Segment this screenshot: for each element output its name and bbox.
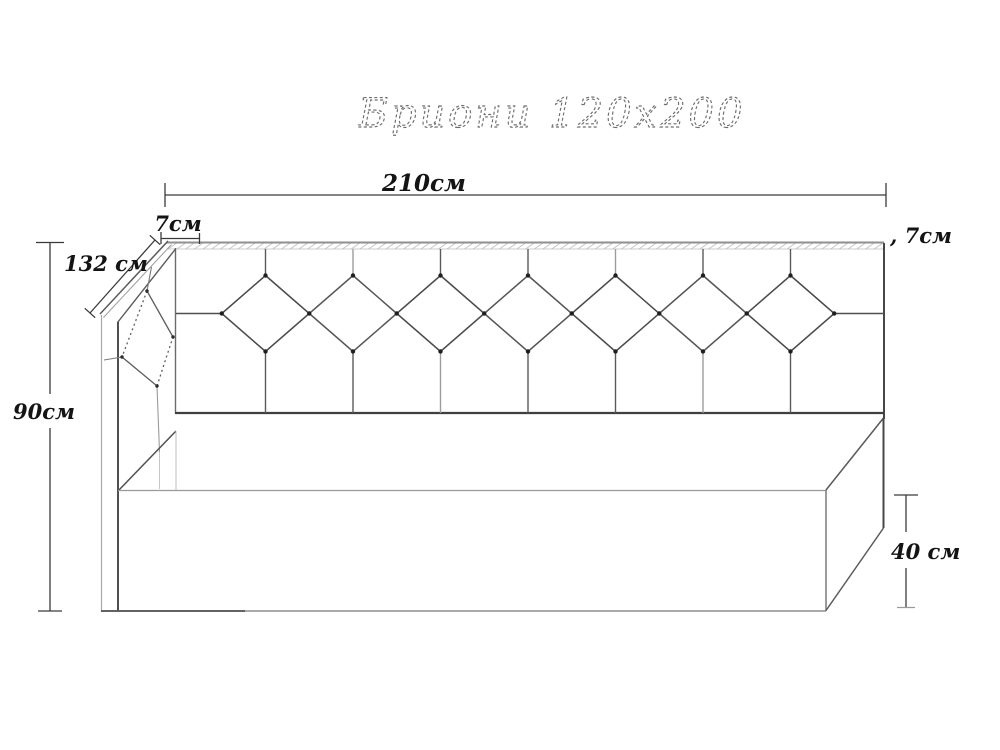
tufting-button-dot [657,311,661,315]
tufting-button-dot [526,349,530,353]
base-box [101,418,884,611]
dim-label-panel-thickness-left: 7см [154,211,201,236]
drawing-page: Бриони 120x200 [0,0,1000,750]
dim-label-top-width: 210см [381,170,466,197]
tufting-button-dot [526,273,530,277]
side-panel-diamond [104,267,175,489]
dim-label-side-panel-length: 132 см [64,251,148,276]
headboard [167,243,884,420]
base-right-top-diagonal [826,418,884,490]
tufting-diamond [484,276,572,352]
tufting-diamond [309,276,397,352]
tufting-button-dot [438,273,442,277]
tufting-button-dot [351,273,355,277]
tufting-button-dot [438,349,442,353]
tufting-diamond [572,276,660,352]
dim-label-overall-height: 90см [13,399,75,424]
headboard-top-edge-strip [168,244,884,250]
tufting-button-dot [788,273,792,277]
tufting-button-dot [570,311,574,315]
tufting-diamond [222,276,310,352]
tufting-button-dot [351,349,355,353]
tufting-button-dot [482,311,486,315]
tufting-button-dot [701,273,705,277]
side-diamond-bottom-seam [157,386,160,452]
side-panel [100,241,176,611]
tufting-diamond [747,276,835,352]
tufting-button-dot [745,311,749,315]
tufting-button-dot [263,349,267,353]
tufting-diamond [397,276,485,352]
tufting-button-dot [395,311,399,315]
dim-label-panel-thickness-right: , 7см [889,223,952,248]
bed-dimension-diagram: Бриони 120x200 [0,0,1000,750]
base-right-bottom-diagonal [826,528,884,611]
tufting-diamond [659,276,747,352]
headboard-diamond-pattern [220,249,837,413]
tufting-button-dot [613,273,617,277]
tufting-button-dot [832,311,836,315]
tufting-button-dot [701,349,705,353]
tufting-button-dot [263,273,267,277]
dim-label-base-height: 40 см [891,539,960,564]
drawing-title: Бриони 120x200 [358,91,746,137]
tufting-button-dot [307,311,311,315]
dimension-labels: 210см 7см 132 см , 7см 90см 40 см [13,170,960,564]
tufting-button-dot [613,349,617,353]
tufting-button-dot [788,349,792,353]
tufting-button-dot [220,311,224,315]
seat-corner-diagonal [118,431,176,491]
side-diamond-left-seam [104,357,122,360]
